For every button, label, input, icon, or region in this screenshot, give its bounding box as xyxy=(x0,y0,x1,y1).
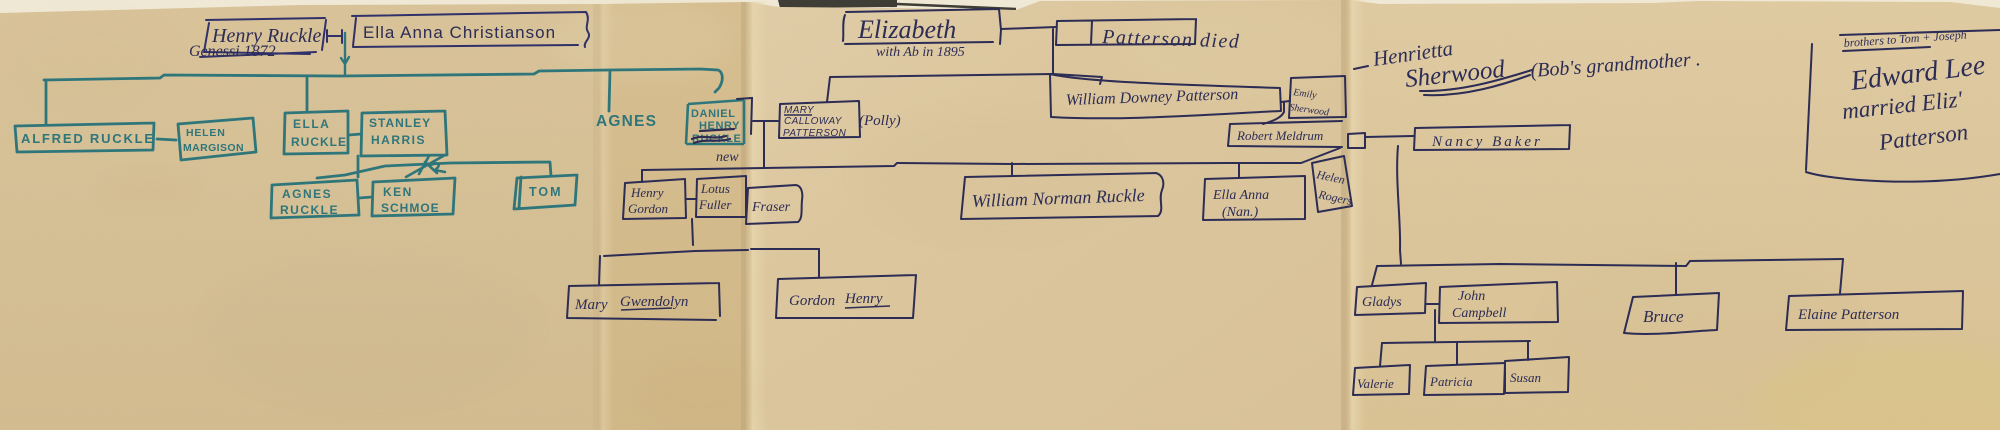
svg-text:STANLEY: STANLEY xyxy=(369,116,431,130)
svg-text:Susan: Susan xyxy=(1510,370,1541,385)
svg-text:with Ab in 1895: with Ab in 1895 xyxy=(876,45,965,60)
svg-text:MARGISON: MARGISON xyxy=(183,142,244,154)
svg-text:AGNES: AGNES xyxy=(596,113,657,130)
svg-text:TOM: TOM xyxy=(529,185,563,199)
svg-text:AGNES: AGNES xyxy=(282,187,332,201)
svg-text:Campbell: Campbell xyxy=(1452,306,1507,321)
svg-text:Fuller: Fuller xyxy=(698,197,732,212)
svg-text:John: John xyxy=(1458,289,1485,304)
svg-text:Ella Anna: Ella Anna xyxy=(1212,188,1269,203)
svg-text:CALLOWAY: CALLOWAY xyxy=(784,116,843,127)
svg-text:Ella Anna Christianson: Ella Anna Christianson xyxy=(363,23,556,42)
svg-text:Fraser: Fraser xyxy=(751,200,791,215)
svg-text:Patricia: Patricia xyxy=(1429,374,1473,389)
svg-text:Elaine Patterson: Elaine Patterson xyxy=(1797,307,1899,323)
svg-text:Gordon: Gordon xyxy=(789,293,835,309)
svg-text:(Nan.): (Nan.) xyxy=(1222,205,1259,220)
svg-text:RUCKLE: RUCKLE xyxy=(692,133,741,145)
svg-text:Gwendolyn: Gwendolyn xyxy=(620,294,688,310)
svg-text:Elizabeth: Elizabeth xyxy=(857,15,956,44)
svg-text:HARRIS: HARRIS xyxy=(371,133,426,147)
svg-text:Genessi 1872: Genessi 1872 xyxy=(189,43,276,60)
svg-text:SCHMOE: SCHMOE xyxy=(381,201,440,215)
svg-text:Lotus: Lotus xyxy=(700,181,730,196)
svg-text:Gladys: Gladys xyxy=(1362,295,1402,310)
svg-text:Nancy Baker: Nancy Baker xyxy=(1431,134,1543,150)
svg-text:HELEN: HELEN xyxy=(186,127,226,139)
svg-text:KEN: KEN xyxy=(383,185,413,199)
svg-text:ELLA: ELLA xyxy=(293,117,330,131)
svg-text:ALFRED RUCKLE: ALFRED RUCKLE xyxy=(21,131,155,146)
svg-text:Bruce: Bruce xyxy=(1643,307,1684,326)
svg-text:DANIEL: DANIEL xyxy=(691,108,736,120)
svg-text:(Polly): (Polly) xyxy=(859,113,901,129)
svg-text:RUCKLE: RUCKLE xyxy=(280,203,339,217)
svg-text:Henry: Henry xyxy=(630,185,664,200)
svg-text:new: new xyxy=(716,150,739,165)
svg-text:Valerie: Valerie xyxy=(1357,376,1394,391)
svg-text:Mary: Mary xyxy=(574,297,608,313)
svg-text:RUCKLE: RUCKLE xyxy=(291,135,347,149)
svg-text:Gordon: Gordon xyxy=(628,201,668,216)
svg-text:Robert Meldrum: Robert Meldrum xyxy=(1236,128,1323,143)
svg-text:Henry: Henry xyxy=(844,291,883,307)
